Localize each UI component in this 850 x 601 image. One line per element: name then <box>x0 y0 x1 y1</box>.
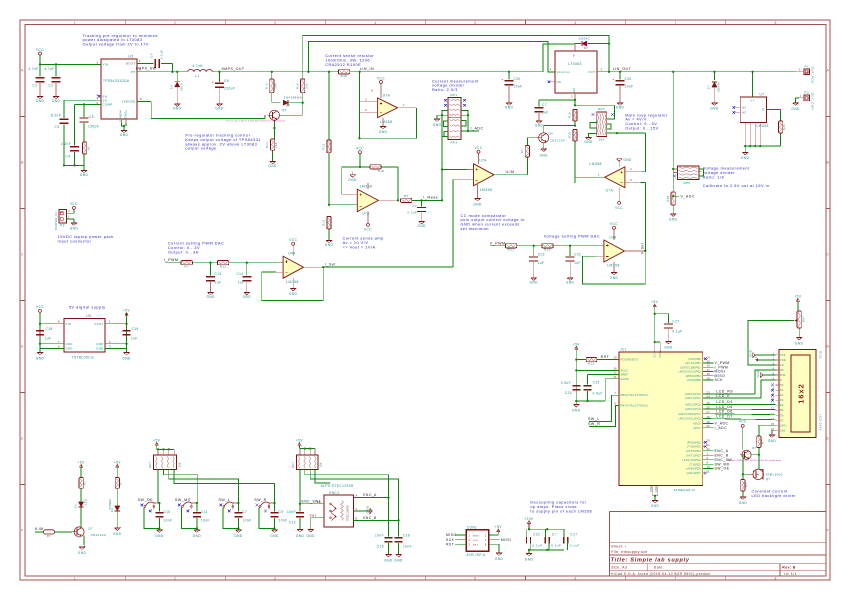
svg-text:IRML6302: IRML6302 <box>766 473 783 477</box>
svg-text:2: 2 <box>571 95 573 99</box>
svg-text:V+: V+ <box>751 100 755 103</box>
svg-text:C19: C19 <box>132 327 139 331</box>
svg-text:GND: GND <box>270 534 279 538</box>
svg-text:I_Set: I_Set <box>325 262 336 266</box>
svg-text:E: E <box>827 437 830 441</box>
svg-text:input connector: input connector <box>58 240 92 244</box>
svg-text:C2: C2 <box>49 84 54 88</box>
svg-text:GND: GND <box>495 557 504 561</box>
svg-text:1: 1 <box>139 59 141 63</box>
svg-text:RP5: RP5 <box>684 181 691 185</box>
svg-text:LM334: LM334 <box>756 124 769 128</box>
svg-text:VO: VO <box>780 365 784 367</box>
svg-text:+: + <box>612 78 615 82</box>
svg-text:Current measurement: Current measurement <box>432 79 479 83</box>
svg-text:C15: C15 <box>377 545 384 549</box>
svg-text:(INT1)PD3: (INT1)PD3 <box>686 454 701 457</box>
svg-text:VIN: VIN <box>103 63 109 67</box>
svg-text:R?: R? <box>119 481 123 485</box>
svg-text:I_ADC: I_ADC <box>715 426 728 430</box>
svg-text:OUT_POS: OUT_POS <box>811 67 815 84</box>
svg-text:ENC_B: ENC_B <box>363 516 377 520</box>
svg-text:RS: RS <box>780 370 784 372</box>
svg-text:R/W: R/W <box>780 375 786 377</box>
svg-text:MISO: MISO <box>446 533 456 537</box>
svg-text:NC: NC <box>742 110 747 114</box>
svg-text:ADC6: ADC6 <box>693 423 701 426</box>
svg-text:OUT: OUT <box>588 70 595 74</box>
svg-text:GND: GND <box>473 203 482 207</box>
svg-text:C27: C27 <box>672 320 679 324</box>
svg-text:R: R <box>762 108 764 112</box>
svg-text:RP2: RP2 <box>598 107 605 111</box>
svg-text:LIN_IN: LIN_IN <box>360 67 374 71</box>
svg-text:U7A: U7A <box>383 93 391 97</box>
svg-text:20: 20 <box>613 372 617 375</box>
svg-text:PB6(XTAL1/TOSC1): PB6(XTAL1/TOSC1) <box>621 394 649 397</box>
svg-text:ALPS-STEC12E08: ALPS-STEC12E08 <box>321 484 354 488</box>
svg-text:2k2: 2k2 <box>274 142 278 148</box>
svg-text:10k: 10k <box>599 138 605 142</box>
svg-text:R?: R? <box>404 194 409 198</box>
svg-text:Q7: Q7 <box>88 526 93 530</box>
svg-text:(AIN1)PD7: (AIN1)PD7 <box>686 472 701 475</box>
svg-text:VSENSE: VSENSE <box>122 100 136 104</box>
svg-text:2N2222A: 2N2222A <box>91 533 106 537</box>
svg-text:Vsense_limit 2.05V at 3.3V/5.0: Vsense_limit 2.05V at 3.3V/5.00V 0.05%/0… <box>226 120 285 123</box>
svg-text:POWER: POWER <box>110 499 112 509</box>
svg-text:10k: 10k <box>319 462 323 468</box>
svg-text:+5V: +5V <box>794 294 801 298</box>
svg-text:GND: GND <box>741 156 750 160</box>
svg-text:IC1: IC1 <box>621 347 627 351</box>
svg-text:I_ADC: I_ADC <box>471 126 484 130</box>
svg-text:1: 1 <box>800 93 802 97</box>
svg-text:7: 7 <box>674 576 676 580</box>
svg-text:1: 1 <box>74 21 76 25</box>
svg-text:+5V: +5V <box>754 354 758 360</box>
svg-text:+5V: +5V <box>651 300 658 304</box>
svg-text:SCK: SCK <box>446 538 455 542</box>
svg-text:C5: C5 <box>89 115 94 119</box>
svg-text:R?: R? <box>760 440 764 444</box>
svg-text:R18: R18 <box>378 169 385 173</box>
svg-text:1uF: 1uF <box>215 281 222 285</box>
svg-text:LCD_D5: LCD_D5 <box>716 405 732 409</box>
svg-text:PB: PB <box>317 502 321 504</box>
svg-text:GND: GND <box>394 559 403 563</box>
svg-text:Tracking pre-regulator to mini: Tracking pre-regulator to minimize <box>83 34 158 38</box>
svg-text:GND: GND <box>206 295 215 299</box>
svg-text:Q6: Q6 <box>549 132 554 136</box>
svg-text:6: 6 <box>58 344 60 348</box>
svg-text:6: 6 <box>574 21 576 25</box>
svg-text:Date:: Date: <box>654 565 664 569</box>
svg-text:Q5: Q5 <box>282 108 287 112</box>
svg-text:GND: GND <box>710 107 719 111</box>
svg-text:+5V: +5V <box>495 525 502 529</box>
svg-text:2.2nF: 2.2nF <box>61 142 71 146</box>
svg-text:R?: R? <box>520 149 524 153</box>
svg-text:GND: GND <box>584 140 593 144</box>
svg-text:(RXD)PD0: (RXD)PD0 <box>687 441 701 444</box>
svg-text:GND: GND <box>193 534 202 538</box>
svg-text:R26: R26 <box>782 124 786 130</box>
svg-text:Vcontrol: Vcontrol <box>557 70 571 74</box>
svg-text:+5V: +5V <box>123 308 130 312</box>
svg-text:Control: 0...3V: Control: 0...3V <box>168 246 200 250</box>
svg-text:4: 4 <box>550 67 552 71</box>
svg-text:C: C <box>356 508 358 511</box>
svg-text:GND: GND <box>80 173 89 177</box>
svg-text:DIS1: DIS1 <box>818 351 822 359</box>
svg-text:4.7uH: 4.7uH <box>192 64 203 68</box>
svg-text:VCC: VCC <box>615 206 623 210</box>
svg-text:+5V: +5V <box>78 460 85 464</box>
svg-text:U4B: U4B <box>609 235 616 239</box>
svg-text:ENC_B: ENC_B <box>715 453 729 457</box>
svg-text:output voltage: output voltage <box>185 147 216 151</box>
svg-text:D?: D? <box>707 85 711 89</box>
svg-text:D1: D1 <box>74 504 78 508</box>
svg-text:LED+: LED+ <box>780 425 787 427</box>
svg-text:0.5uF: 0.5uF <box>593 392 603 396</box>
svg-text:File: etbsupply.sch: File: etbsupply.sch <box>611 550 647 554</box>
svg-text:16x2: 16x2 <box>797 383 806 403</box>
svg-text:10nF: 10nF <box>242 519 251 523</box>
svg-text:RST: RST <box>601 355 610 359</box>
svg-text:0.1uF: 0.1uF <box>407 211 417 215</box>
svg-text:GND: GND <box>417 224 426 228</box>
svg-text:GND: GND <box>36 99 45 103</box>
svg-text:19VDC laptop power pack: 19VDC laptop power pack <box>58 235 114 239</box>
svg-text:5V digital supply: 5V digital supply <box>69 305 106 309</box>
svg-text:C?: C? <box>412 204 417 208</box>
svg-text:ENC1: ENC1 <box>329 491 339 495</box>
svg-text:LCD_D4: LCD_D4 <box>716 400 732 404</box>
svg-text:MISO: MISO <box>473 535 480 537</box>
svg-text:1: 1 <box>68 215 70 219</box>
svg-text:D3: D3 <box>170 85 174 89</box>
svg-text:ILIM: ILIM <box>506 170 515 174</box>
svg-text:1: 1 <box>598 173 600 177</box>
svg-text:(TXD)PD1: (TXD)PD1 <box>687 446 701 449</box>
svg-text:Decoupling capacitors for: Decoupling capacitors for <box>530 501 586 505</box>
svg-text:C9: C9 <box>279 510 284 514</box>
svg-text:R12: R12 <box>322 143 326 149</box>
svg-text:5: 5 <box>474 21 476 25</box>
svg-text:C17: C17 <box>570 532 577 536</box>
svg-text:10k: 10k <box>273 83 277 89</box>
svg-text:GND: GND <box>651 486 653 492</box>
svg-text:SW_L: SW_L <box>588 417 600 421</box>
svg-text:150pF: 150pF <box>88 125 99 129</box>
svg-text:C1: C1 <box>33 84 38 88</box>
svg-text:R22: R22 <box>588 362 595 366</box>
svg-text:E: E <box>21 437 24 441</box>
svg-text:VCC: VCC <box>655 352 657 358</box>
svg-text:Ratio: 1/6: Ratio: 1/6 <box>703 175 725 179</box>
svg-text:GND: GND <box>572 409 581 413</box>
svg-text:VCC: VCC <box>36 48 44 52</box>
svg-text:Av = 4V/V: Av = 4V/V <box>625 118 647 122</box>
svg-text:CC mode comparator: CC mode comparator <box>461 214 507 218</box>
svg-text:VCC: VCC <box>610 222 618 226</box>
svg-text:RV?: RV? <box>802 316 806 323</box>
svg-text:Calibrate to 2.5V out at 15V i: Calibrate to 2.5V out at 15V in <box>703 184 770 188</box>
svg-text:voltage divider: voltage divider <box>703 171 736 175</box>
svg-text:VIN: VIN <box>66 322 72 326</box>
svg-text:GND: GND <box>289 292 298 296</box>
svg-text:R14: R14 <box>265 142 269 148</box>
svg-text:D: D <box>826 345 829 349</box>
svg-text:OUT_GND: OUT_GND <box>811 93 815 110</box>
svg-text:D7: D7 <box>584 46 588 50</box>
svg-text:SMPS_SW: SMPS_SW <box>136 66 157 70</box>
svg-text:2: 2 <box>174 576 176 580</box>
svg-text:RST: RST <box>473 545 479 547</box>
svg-text:9: 9 <box>120 110 122 114</box>
svg-text:B: B <box>356 517 358 520</box>
svg-text:GND: GND <box>379 130 388 134</box>
svg-text:R2: R2 <box>86 146 90 150</box>
svg-text:GND: GND <box>96 347 103 351</box>
svg-text:R11: R11 <box>220 265 226 269</box>
svg-text:Output voltage from 2V to 17V: Output voltage from 2V to 17V <box>83 43 149 47</box>
svg-text:D4: D4 <box>780 405 784 407</box>
svg-text:R25: R25 <box>666 195 670 201</box>
svg-text:C10: C10 <box>163 510 170 514</box>
svg-text:7: 7 <box>58 340 60 344</box>
svg-text:C14: C14 <box>236 272 243 276</box>
svg-text:+5V: +5V <box>153 438 160 442</box>
svg-text:GND: GND <box>66 342 73 346</box>
svg-text:1: 1 <box>109 320 111 324</box>
svg-text:(AIN0)PD6: (AIN0)PD6 <box>686 468 701 471</box>
svg-text:SCK: SCK <box>473 540 479 542</box>
svg-text:GND: GND <box>739 501 748 505</box>
svg-text:1uF: 1uF <box>45 337 52 341</box>
svg-text:SW_R: SW_R <box>254 498 266 502</box>
svg-text:(ICP)PB0: (ICP)PB0 <box>688 358 701 361</box>
svg-text:LCD_D7: LCD_D7 <box>716 414 732 418</box>
svg-text:U?A: U?A <box>606 189 614 193</box>
svg-text:8: 8 <box>371 89 373 93</box>
svg-text:GND: GND <box>155 534 164 538</box>
svg-text:STEC12E08: STEC12E08 <box>348 505 350 521</box>
svg-text:10uF: 10uF <box>625 85 634 89</box>
svg-text:C24: C24 <box>565 391 572 395</box>
svg-text:C12: C12 <box>289 521 296 525</box>
svg-text:GND: GND <box>366 506 370 514</box>
svg-text:3: 3 <box>109 344 111 348</box>
svg-text:CRA2512 R100E: CRA2512 R100E <box>325 63 361 67</box>
svg-text:Title: Simple lab supply: Title: Simple lab supply <box>611 557 690 563</box>
svg-text:V_PWM: V_PWM <box>490 242 506 246</box>
svg-text:BOOT: BOOT <box>126 62 136 66</box>
svg-text:4.7uF: 4.7uF <box>44 67 54 71</box>
svg-text:P3: P3 <box>60 224 65 228</box>
svg-text:GND: GND <box>215 107 224 111</box>
svg-text:MOSI: MOSI <box>501 538 511 542</box>
svg-text:8: 8 <box>58 320 60 324</box>
svg-text:GND: GND <box>530 281 539 285</box>
svg-text:COMP: COMP <box>103 103 113 107</box>
svg-text:2: 2 <box>68 209 70 213</box>
svg-text:1: 1 <box>74 576 76 580</box>
svg-text:C7: C7 <box>242 510 247 514</box>
svg-text:Current sense resistor: Current sense resistor <box>325 54 374 58</box>
svg-text:5: 5 <box>140 97 142 101</box>
svg-text:+: + <box>501 78 504 82</box>
svg-text:RST: RST <box>446 542 454 546</box>
svg-text:GND: GND <box>70 227 79 231</box>
svg-text:10k: 10k <box>178 462 182 468</box>
svg-text:GND: GND <box>664 345 673 349</box>
svg-text:Keeps output voltage of TPS543: Keeps output voltage of TPS54331 <box>185 138 261 142</box>
svg-text:TS78L05CS: TS78L05CS <box>71 356 94 360</box>
svg-text:GND: GND <box>36 357 45 361</box>
svg-text:C16: C16 <box>403 534 410 538</box>
svg-text:RP3: RP3 <box>451 141 458 145</box>
svg-text:5819: 5819 <box>180 83 184 91</box>
svg-text:GND: GND <box>768 439 777 443</box>
svg-text:GND: GND <box>348 178 357 182</box>
svg-text:GND: GND <box>656 486 658 492</box>
svg-text:LM358: LM358 <box>607 264 620 268</box>
svg-text:VDD: VDD <box>780 360 786 362</box>
svg-text:PH: PH <box>131 70 136 74</box>
svg-text:VSS: VSS <box>780 355 786 357</box>
svg-text:LM358: LM358 <box>589 162 602 166</box>
svg-text:D4: D4 <box>286 104 290 108</box>
svg-text:F: F <box>21 529 24 533</box>
svg-text:3: 3 <box>601 67 603 71</box>
svg-text:A: A <box>827 69 830 73</box>
svg-text:GND: GND <box>296 534 305 538</box>
svg-text:1: 1 <box>799 67 801 71</box>
svg-text:LM358: LM358 <box>380 120 393 124</box>
svg-text:GND: GND <box>113 532 122 536</box>
svg-text:3: 3 <box>365 97 367 101</box>
svg-text:0.1uF: 0.1uF <box>533 543 543 547</box>
svg-text:0.1uF: 0.1uF <box>570 543 580 547</box>
svg-text:D2: D2 <box>780 395 784 397</box>
svg-text:U?: U? <box>760 92 765 96</box>
svg-text:7: 7 <box>614 392 616 395</box>
svg-text:=> Vout = 1V/A: => Vout = 1V/A <box>343 245 376 249</box>
svg-text:C18: C18 <box>46 327 53 331</box>
svg-text:C7: C7 <box>542 103 547 107</box>
svg-text:op amps. Place close: op amps. Place close <box>530 505 577 509</box>
svg-text:VCC: VCC <box>36 305 44 309</box>
svg-text:C: C <box>21 253 24 257</box>
svg-text:POWER_IN: POWER_IN <box>54 212 58 230</box>
svg-text:10nF: 10nF <box>279 519 288 523</box>
svg-text:GND: GND <box>384 559 393 563</box>
svg-text:GND: GND <box>610 276 619 280</box>
svg-text:LCD-16X2: LCD-16X2 <box>818 414 822 431</box>
svg-text:0.5uF: 0.5uF <box>561 381 571 385</box>
svg-text:R?: R? <box>47 534 51 538</box>
svg-text:Output: 0...3A: Output: 0...3A <box>168 250 199 254</box>
svg-text:R20: R20 <box>544 248 551 252</box>
svg-text:B: B <box>21 161 24 165</box>
svg-text:RP1: RP1 <box>451 93 458 97</box>
svg-text:(ADC1)PC1: (ADC1)PC1 <box>685 397 701 400</box>
svg-text:D7: D7 <box>780 420 784 422</box>
svg-text:SW_R: SW_R <box>588 422 600 426</box>
svg-text:C21: C21 <box>574 252 581 256</box>
svg-text:A: A <box>356 495 358 498</box>
svg-text:VOUT: VOUT <box>94 322 103 326</box>
svg-text:GND: GND <box>173 107 182 111</box>
svg-text:4: 4 <box>374 576 376 580</box>
svg-text:PC6(RESET): PC6(RESET) <box>621 359 639 362</box>
svg-text:C20: C20 <box>514 77 521 81</box>
svg-text:LCD_RS: LCD_RS <box>716 390 733 394</box>
svg-text:0.1uF: 0.1uF <box>672 330 682 334</box>
svg-text:R19: R19 <box>568 132 572 138</box>
svg-text:LED: LED <box>85 499 88 505</box>
svg-text:2N2222A: 2N2222A <box>550 139 565 143</box>
svg-text:A: A <box>21 69 24 73</box>
svg-text:LIN_OUT: LIN_OUT <box>613 67 632 71</box>
svg-text:SW_L: SW_L <box>219 498 231 502</box>
svg-text:ADC7: ADC7 <box>693 427 701 430</box>
svg-text:C11: C11 <box>201 510 208 514</box>
svg-text:GND: GND <box>52 99 61 103</box>
svg-text:Pre-regulator tracking control: Pre-regulator tracking control <box>185 134 250 138</box>
svg-text:F: F <box>827 529 830 533</box>
svg-text:(MISO)PB4: (MISO)PB4 <box>686 375 702 378</box>
svg-text:Current sense amp: Current sense amp <box>343 237 384 241</box>
svg-text:(OC1A)PB1: (OC1A)PB1 <box>685 362 701 365</box>
svg-text:7: 7 <box>674 21 676 25</box>
svg-text:R13: R13 <box>322 219 326 225</box>
svg-text:10nF: 10nF <box>201 519 210 523</box>
svg-text:GND: GND <box>78 551 87 555</box>
svg-text:3: 3 <box>630 178 632 182</box>
svg-text:Voltage measurement: Voltage measurement <box>703 167 750 171</box>
svg-text:LCD_E: LCD_E <box>716 394 730 398</box>
svg-text:31: 31 <box>707 444 711 447</box>
svg-text:1uF: 1uF <box>542 111 549 115</box>
svg-text:D1: D1 <box>780 390 784 392</box>
svg-text:C8: C8 <box>224 79 229 83</box>
svg-text:GND: GND <box>791 107 800 111</box>
svg-text:(T1)PD5: (T1)PD5 <box>689 463 701 466</box>
svg-text:2: 2 <box>97 60 99 64</box>
svg-text:always approx. 2V above LT3083: always approx. 2V above LT3083 <box>185 142 257 146</box>
svg-text:LED-: LED- <box>780 430 787 432</box>
svg-text:R15: R15 <box>341 74 348 78</box>
svg-text:C3: C3 <box>55 125 60 129</box>
svg-text:RP?: RP? <box>291 462 295 468</box>
svg-text:NC: NC <box>557 80 562 84</box>
svg-text:D3: D3 <box>780 400 784 402</box>
svg-text:D0: D0 <box>780 385 784 387</box>
svg-text:C25: C25 <box>593 381 600 385</box>
svg-text:V_ADC: V_ADC <box>681 195 695 199</box>
svg-text:8: 8 <box>573 54 575 58</box>
svg-text:VCC: VCC <box>739 420 747 424</box>
svg-text:C22: C22 <box>533 532 540 536</box>
svg-text:C6: C6 <box>150 53 154 58</box>
svg-text:0.1uF: 0.1uF <box>160 50 164 60</box>
svg-text:GND: GND <box>651 504 660 508</box>
svg-text:GND: GND <box>535 124 544 128</box>
